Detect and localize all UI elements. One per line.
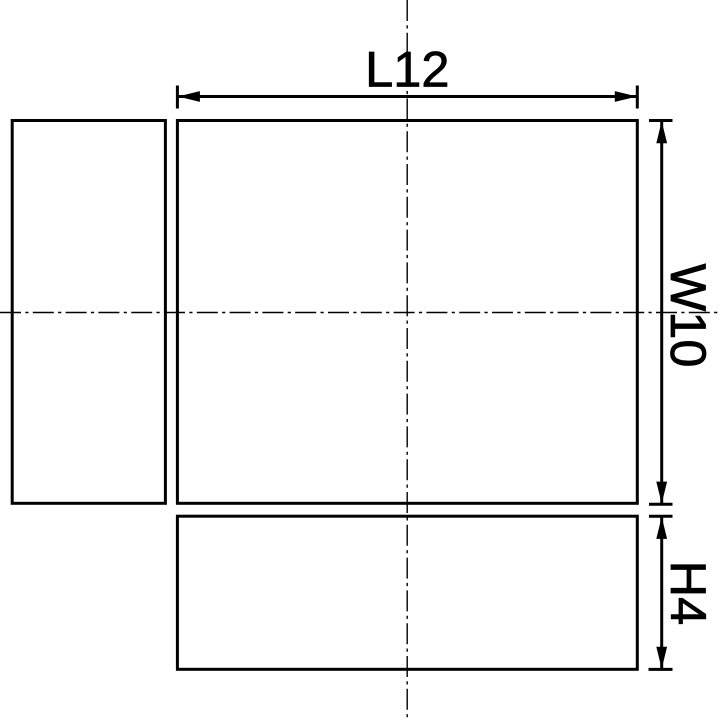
- svg-text:L12: L12: [365, 41, 449, 98]
- svg-text:W10: W10: [660, 264, 717, 368]
- svg-text:H4: H4: [660, 561, 717, 626]
